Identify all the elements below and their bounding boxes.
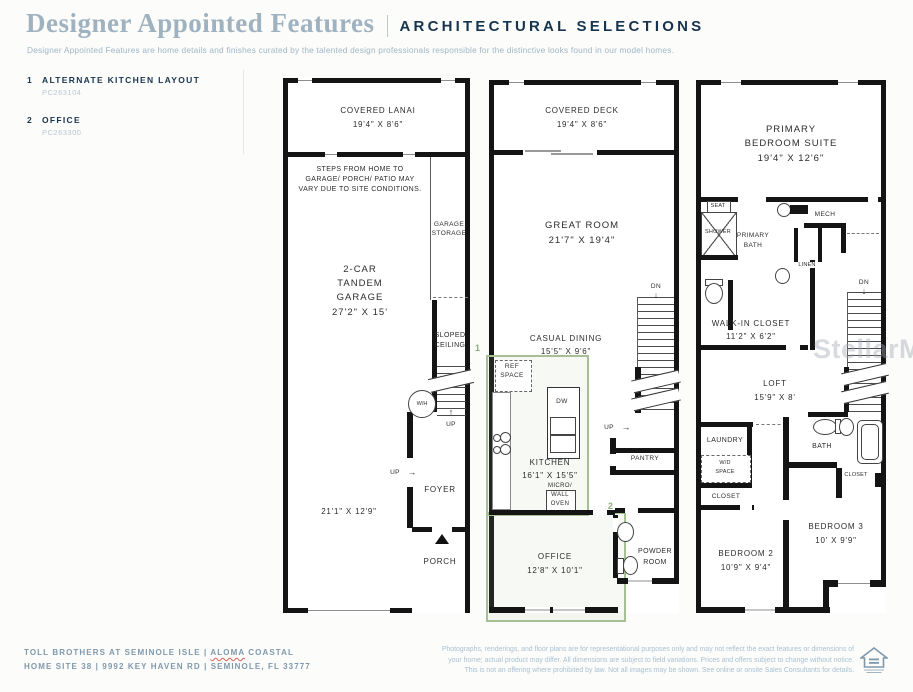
sliding-door (525, 150, 561, 152)
window (441, 78, 455, 83)
wall (841, 228, 846, 253)
disclaimer-line: your home; actual product may differ. Al… (430, 656, 854, 667)
floorplan-first-floor: W/H COVERED LANAI 19'4" X 8'6" STEPS FRO… (283, 78, 470, 613)
room-label-bedroom-2: BEDROOM 2 (718, 549, 773, 558)
room-label-covered-lanai: COVERED LANAI (340, 106, 415, 115)
room-label-garage-storage: STORAGE (432, 230, 466, 237)
room-dim-loft: 15'9" X 8' (754, 393, 795, 402)
window (525, 607, 550, 613)
dashed-line (847, 233, 879, 235)
wall (700, 483, 752, 488)
sliding-door (551, 153, 593, 155)
wall (794, 228, 798, 262)
wall (283, 152, 470, 157)
room-label-garage: GARAGE (337, 292, 384, 303)
window (628, 578, 652, 584)
window (403, 152, 415, 157)
stairs-up-label: UP (604, 424, 614, 431)
room-label-powder-room: ROOM (643, 559, 666, 566)
dishwasher-drawer (550, 435, 576, 453)
water-heater-label: W/H (417, 401, 428, 407)
shower-icon (701, 212, 737, 258)
room-dim-primary-suite: 19'4" X 12'6" (758, 153, 825, 164)
dishwasher-drawer (550, 417, 576, 435)
note-line: GARAGE/ PORCH/ PATIO MAY (305, 176, 414, 183)
ref-space-label: SPACE (500, 372, 524, 379)
door-swing-icon (435, 534, 449, 544)
wall (818, 228, 822, 262)
note-sloped-ceiling: SLOPED (435, 332, 466, 339)
garage-door (308, 608, 390, 613)
page-description: Designer Appointed Features are home det… (27, 45, 674, 55)
micro-label: MICRO/ (548, 483, 572, 489)
watermark: StellarMLS (813, 334, 913, 365)
wall-opening (625, 508, 638, 513)
bathtub-icon (861, 424, 879, 460)
wall-chase (790, 205, 808, 214)
legend-item-2-number: 2 (27, 115, 32, 125)
toilet-icon (705, 283, 723, 304)
window (745, 607, 775, 613)
stairs-down-label: DN (651, 283, 661, 290)
wall-oven-label: WALL (551, 492, 569, 498)
footer-disclaimer: Photographs, renderings, and floor plans… (430, 645, 854, 677)
arrow-down-icon: ↓ (654, 291, 659, 300)
room-label-foyer: FOYER (424, 485, 456, 494)
room-label-bedroom-3: BEDROOM 3 (808, 522, 863, 531)
room-dim-bedroom-3: 10' X 9'9" (815, 536, 856, 545)
wall-opening (593, 510, 607, 515)
room-label-mech: MECH (815, 211, 836, 218)
room-label-covered-deck: COVERED DECK (545, 106, 619, 115)
room-dim-bedroom-2: 10'9" X 9'4" (721, 563, 771, 572)
sink-icon (617, 522, 634, 542)
legend-item-2-code: PC263300 (42, 128, 81, 137)
wall-opening (868, 197, 878, 202)
arrow-down-icon: ↓ (862, 287, 867, 296)
cooktop-burner-icon (493, 434, 501, 442)
room-label-powder-room: POWDER (638, 548, 672, 555)
room-label-primary-bath: BATH (744, 242, 762, 249)
room-label-primary-suite: PRIMARY (766, 124, 816, 135)
disclaimer-line: Photographs, renderings, and floor plans… (430, 645, 854, 656)
wall-opening (610, 454, 616, 466)
stairs-down-label: DN (859, 279, 869, 286)
footer-community-line: TOLL BROTHERS AT SEMINOLE ISLE | ALOMA C… (24, 648, 294, 657)
wall (875, 473, 881, 487)
arrow-right-icon: → (408, 468, 417, 477)
disclaimer-line: This is not an offering where prohibited… (430, 666, 854, 677)
selection-marker-1: 1 (475, 343, 480, 353)
room-dim-office: 12'8" X 10'1" (527, 566, 583, 575)
wall-oven-label: OVEN (551, 501, 570, 507)
cooktop-burner-icon (500, 432, 511, 443)
wall-opening (740, 505, 752, 510)
window (721, 80, 741, 85)
room-dim-garage: 27'2" X 15' (332, 307, 388, 318)
footer-community-pre: TOLL BROTHERS AT SEMINOLE ISLE | (24, 648, 210, 657)
window (641, 80, 656, 85)
window (838, 80, 858, 85)
page-header: Designer Appointed Features ARCHITECTURA… (26, 8, 704, 39)
wall-opening (786, 345, 800, 350)
room-label-walk-in-closet: WALK-IN CLOSET (712, 319, 790, 328)
wall (616, 448, 674, 453)
dishwasher-label: DW (556, 398, 568, 405)
room-label-pantry: PANTRY (631, 455, 659, 462)
wall (465, 78, 470, 613)
cooktop-burner-icon (500, 444, 511, 455)
cooktop-burner-icon (493, 446, 501, 454)
note-sloped-ceiling: CEILING (435, 342, 466, 349)
room-label-bath: BATH (812, 443, 832, 450)
wall (836, 468, 842, 498)
page-title: Designer Appointed Features (26, 8, 375, 39)
room-dim-casual-dining: 15'5" X 9'6" (541, 347, 591, 356)
note-line: VARY DUE TO SITE CONDITIONS. (299, 186, 422, 193)
arrow-right-icon: → (622, 423, 631, 432)
wall (283, 78, 288, 613)
wall (804, 223, 846, 228)
title-divider (387, 15, 388, 37)
sloped-ceiling-line (433, 297, 468, 299)
floorplan-second-floor: 1 2 COVERED DECK 19'4" X 8'6" GREAT ROOM… (489, 80, 679, 613)
legend-item-2-label: OFFICE (42, 115, 81, 125)
room-label-garage-storage: GARAGE (434, 221, 464, 228)
ref-space-label: REF (505, 363, 519, 370)
legend-divider (243, 70, 244, 154)
room-label-primary-bath: PRIMARY (737, 232, 769, 239)
room-dim-walk-in-closet: 11'2" X 6'2" (726, 332, 776, 341)
room-label-casual-dining: CASUAL DINING (530, 334, 602, 343)
room-dim-great-room: 21'7" X 19'4" (549, 235, 616, 246)
room-dim-garage-lower: 21'1" X 12'9" (321, 507, 377, 516)
legend-item-1-label: ALTERNATE KITCHEN LAYOUT (42, 75, 200, 85)
wall (823, 580, 829, 613)
room-label-closet: CLOSET (712, 493, 740, 500)
floorplan-sheet: Designer Appointed Features ARCHITECTURA… (0, 0, 913, 692)
toilet-icon (839, 418, 854, 436)
room-label-loft: LOFT (763, 379, 787, 388)
page-tagline: ARCHITECTURAL SELECTIONS (400, 18, 705, 35)
wall (696, 422, 753, 427)
room-label-closet: CLOSET (844, 472, 867, 478)
water-heater-icon: W/H (408, 390, 436, 418)
footer-address-line: HOME SITE 38 | 9992 KEY HAVEN RD | SEMIN… (24, 662, 311, 671)
toilet-icon (623, 556, 638, 575)
wd-space-label: W/D (719, 460, 730, 466)
window (838, 580, 870, 587)
legend-item-1-code: PC263104 (42, 88, 81, 97)
wall (789, 462, 837, 468)
room-label-garage: 2-CAR (343, 264, 377, 275)
wall-opening (412, 608, 465, 613)
partition-line (430, 157, 431, 300)
sink-icon (813, 419, 837, 435)
wall-opening (738, 197, 766, 202)
window (298, 78, 312, 83)
wall (808, 412, 848, 417)
room-label-office: OFFICE (538, 552, 572, 561)
footer-community-highlight: ALOMA (210, 648, 245, 657)
room-label-kitchen: KITCHEN (530, 458, 571, 467)
window (509, 80, 524, 85)
room-label-great-room: GREAT ROOM (545, 220, 619, 231)
room-label-garage: TANDEM (337, 278, 382, 289)
seat-label: SEAT (711, 203, 726, 209)
equal-housing-icon (860, 647, 888, 675)
dashed-opening (756, 424, 786, 426)
room-dim-covered-deck: 19'4" X 8'6" (557, 120, 607, 129)
wall (696, 255, 738, 260)
wall (616, 470, 674, 475)
room-dim-kitchen: 16'1" X 15'5" (522, 471, 578, 480)
sink-icon (775, 268, 790, 284)
room-label-primary-suite: BEDROOM SUITE (745, 138, 838, 149)
sink-icon (777, 203, 791, 217)
shower-label: SHOWER (705, 229, 731, 235)
room-dim-covered-lanai: 19'4" X 8'6" (353, 120, 403, 129)
wall-opening (432, 527, 452, 532)
note-line: STEPS FROM HOME TO (316, 166, 403, 173)
legend-item-1-number: 1 (27, 75, 32, 85)
window (553, 607, 585, 613)
footer-community-post: COASTAL (245, 648, 294, 657)
wall-opening (783, 500, 789, 520)
stairs-up-label: UP (390, 469, 400, 476)
room-label-linen: LINEN (798, 262, 815, 268)
room-label-porch: PORCH (424, 557, 457, 566)
room-label-laundry: LAUNDRY (707, 437, 743, 444)
stairs-up-label: UP (446, 421, 456, 428)
wd-space-label: SPACE (715, 469, 734, 475)
arrow-up-icon: ↑ (449, 408, 454, 417)
window (325, 152, 337, 157)
